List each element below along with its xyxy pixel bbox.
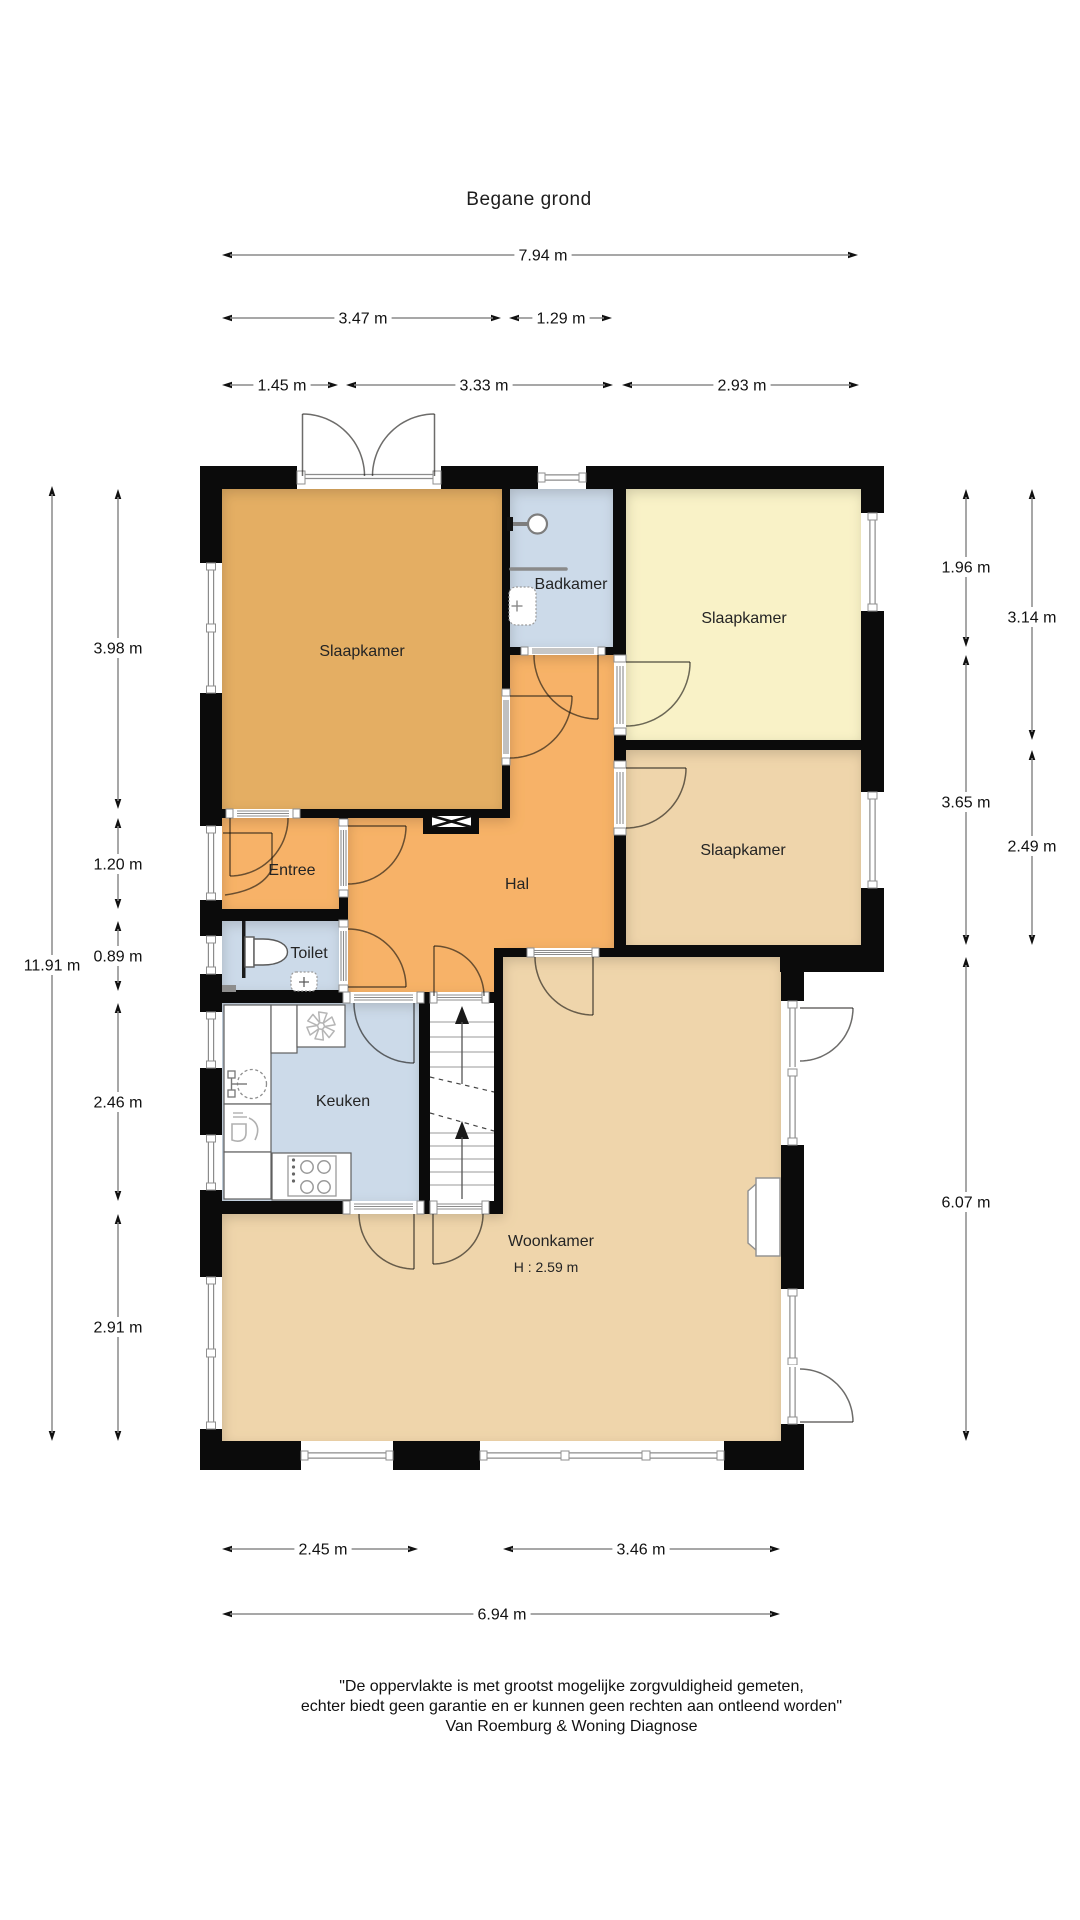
svg-text:2.49 m: 2.49 m	[1008, 839, 1057, 856]
svg-text:2.45 m: 2.45 m	[299, 1542, 348, 1559]
svg-text:3.98 m: 3.98 m	[94, 641, 143, 658]
svg-text:"De oppervlakte is met grootst: "De oppervlakte is met grootst mogelijke…	[339, 1678, 804, 1695]
svg-text:2.46 m: 2.46 m	[94, 1095, 143, 1112]
svg-text:echter biedt geen garantie en: echter biedt geen garantie en er kunnen …	[301, 1698, 842, 1715]
svg-text:3.47 m: 3.47 m	[339, 311, 388, 328]
svg-text:Begane grond: Begane grond	[466, 189, 591, 210]
svg-text:1.96 m: 1.96 m	[942, 560, 991, 577]
svg-text:Badkamer: Badkamer	[535, 576, 609, 593]
svg-text:Toilet: Toilet	[290, 945, 328, 962]
svg-text:0.89 m: 0.89 m	[94, 949, 143, 966]
svg-text:1.29 m: 1.29 m	[537, 311, 586, 328]
svg-text:Slaapkamer: Slaapkamer	[701, 610, 787, 627]
svg-text:6.07 m: 6.07 m	[942, 1195, 991, 1212]
svg-text:2.91 m: 2.91 m	[94, 1320, 143, 1337]
svg-text:3.46 m: 3.46 m	[617, 1542, 666, 1559]
svg-text:6.94 m: 6.94 m	[478, 1607, 527, 1624]
svg-text:Woonkamer: Woonkamer	[508, 1233, 595, 1250]
svg-text:3.65 m: 3.65 m	[942, 795, 991, 812]
svg-text:Keuken: Keuken	[316, 1093, 370, 1110]
svg-text:7.94 m: 7.94 m	[519, 248, 568, 265]
svg-text:Hal: Hal	[505, 876, 529, 893]
svg-text:H : 2.59 m: H : 2.59 m	[514, 1259, 579, 1275]
svg-text:Slaapkamer: Slaapkamer	[700, 842, 786, 859]
svg-text:3.33 m: 3.33 m	[460, 378, 509, 395]
svg-text:2.93 m: 2.93 m	[718, 378, 767, 395]
svg-text:3.14 m: 3.14 m	[1008, 610, 1057, 627]
svg-text:Van Roemburg & Woning Diagnose: Van Roemburg & Woning Diagnose	[446, 1718, 698, 1735]
svg-text:1.20 m: 1.20 m	[94, 857, 143, 874]
svg-text:11.91 m: 11.91 m	[24, 958, 81, 975]
svg-text:Slaapkamer: Slaapkamer	[319, 643, 405, 660]
svg-text:1.45 m: 1.45 m	[258, 378, 307, 395]
svg-text:Entree: Entree	[268, 862, 315, 879]
